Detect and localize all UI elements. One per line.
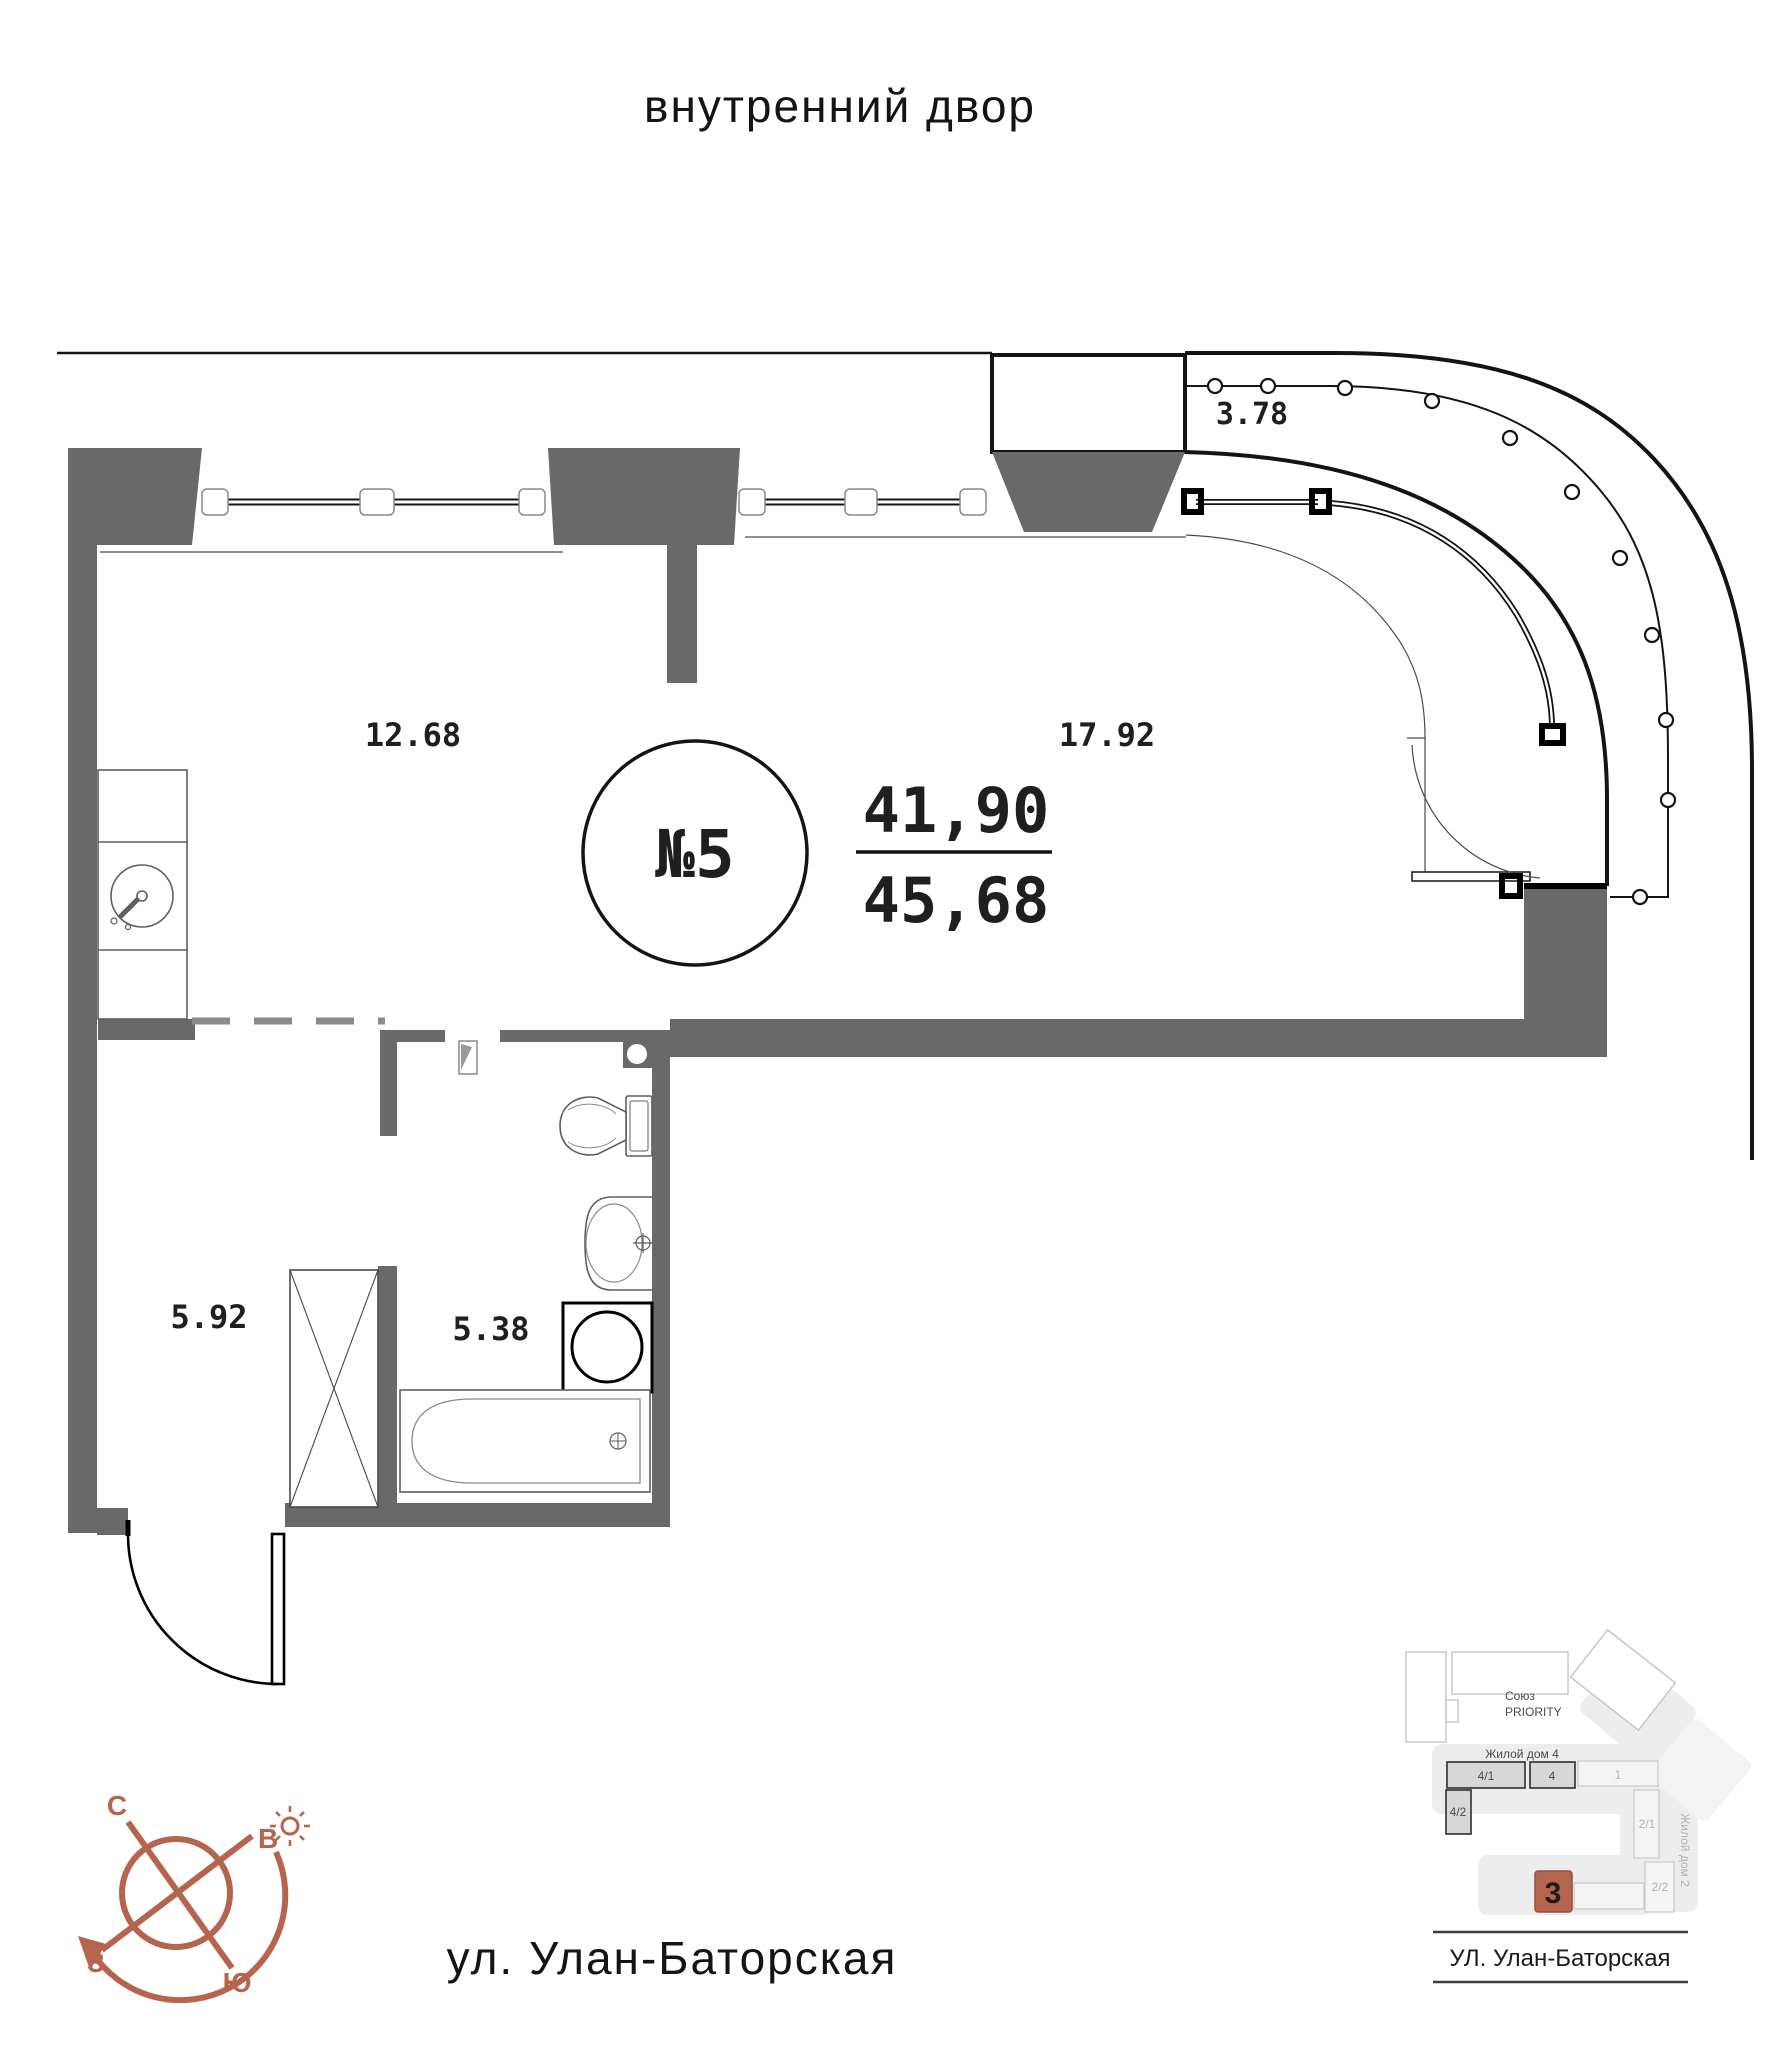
house2-label: Жилой дом 2: [1678, 1813, 1692, 1887]
wall-bath-stub: [380, 1030, 397, 1136]
room-area-hall: 5.92: [170, 1298, 247, 1336]
room-area-balcony: 3.78: [1216, 397, 1288, 432]
balcony-door: [1412, 745, 1607, 896]
apartment-number: №5: [655, 816, 734, 893]
compass-arrow-arc: [92, 1852, 285, 2000]
glazing-frame-icon: [1312, 491, 1329, 512]
living-area-value: 41,90: [863, 774, 1050, 847]
site-minimap: Союз PRIORITY Жилой дом 4 4/1 4 1 4/2 2/…: [1406, 1630, 1754, 1982]
block-4-2-label: 4/2: [1450, 1805, 1467, 1819]
room-area-kitchen: 12.68: [365, 716, 461, 754]
door-frame-icon: [1502, 876, 1520, 896]
window-living: [739, 489, 986, 515]
washbasin-icon: [585, 1197, 653, 1290]
compass-rose: С В З Ю: [78, 1790, 310, 2000]
block-4-1-label: 4/1: [1478, 1769, 1495, 1783]
window-kitchen: [202, 489, 545, 515]
minimap-building-outline: [1452, 1652, 1568, 1694]
block-4-label: 4: [1549, 1769, 1556, 1783]
plumbing-riser-icon: [627, 1044, 647, 1064]
area-fraction: 41,90 45,68: [856, 774, 1052, 937]
bathtub-icon: [400, 1390, 650, 1492]
toilet-icon: [560, 1096, 652, 1156]
wall-stub-kitchen-living: [667, 533, 697, 683]
compass-east-label: В: [258, 1823, 278, 1854]
washing-machine-icon: [563, 1303, 652, 1392]
minimap-block-bar: [1574, 1883, 1644, 1909]
street-label: ул. Улан-Баторская: [447, 1932, 898, 1984]
minimap-street-label: УЛ. Улан-Баторская: [1449, 1945, 1670, 1972]
total-area-value: 45,68: [863, 864, 1050, 937]
wall-right: [1524, 884, 1607, 1057]
wall-living-bottom: [670, 1019, 1524, 1057]
current-building-number: 3: [1545, 1877, 1562, 1910]
floor-plan-drawing: внутренний двор: [0, 0, 1773, 2068]
floor-plan-page: внутренний двор: [0, 0, 1773, 2068]
current-building-marker: 3: [1535, 1871, 1572, 1912]
bathroom-door: [459, 1041, 477, 1074]
glazing-frame-icon: [1184, 491, 1201, 512]
kitchen-counter: [98, 770, 187, 1019]
room-area-bathroom: 5.38: [452, 1310, 529, 1348]
wall-bath-right: [652, 1040, 670, 1527]
wall-entry-stub: [97, 1508, 128, 1535]
wall-hall-bath: [378, 1266, 397, 1507]
loggia-outline: [992, 355, 1185, 452]
entrance-door: [128, 1520, 284, 1684]
room-area-living: 17.92: [1059, 716, 1155, 754]
balcony-glazing: [1184, 491, 1563, 743]
complex-name-line2: PRIORITY: [1505, 1705, 1562, 1719]
wall-pier-left: [68, 448, 202, 545]
sun-icon: [270, 1806, 310, 1846]
complex-name-line1: Союз: [1505, 1689, 1535, 1703]
courtyard-label: внутренний двор: [644, 80, 1036, 132]
compass-north-label: С: [107, 1790, 127, 1821]
apartment-number-badge: №5: [583, 741, 807, 965]
block-2-1-label: 2/1: [1639, 1817, 1656, 1831]
balcony-floor-line: [1186, 535, 1425, 738]
wall-pier-middle: [548, 448, 740, 545]
wardrobe-icon: [290, 1270, 378, 1507]
block-1-label: 1: [1615, 1768, 1622, 1782]
wall-pier-balcony: [992, 452, 1185, 532]
minimap-building-outline: [1446, 1700, 1458, 1722]
wall-kitchen-bottom: [98, 1019, 195, 1040]
house4-label: Жилой дом 4: [1485, 1747, 1559, 1761]
minimap-building-outline: [1406, 1652, 1446, 1742]
block-2-2-label: 2/2: [1652, 1880, 1669, 1894]
wall-left: [68, 545, 97, 1533]
glazing-frame-icon: [1542, 726, 1563, 743]
